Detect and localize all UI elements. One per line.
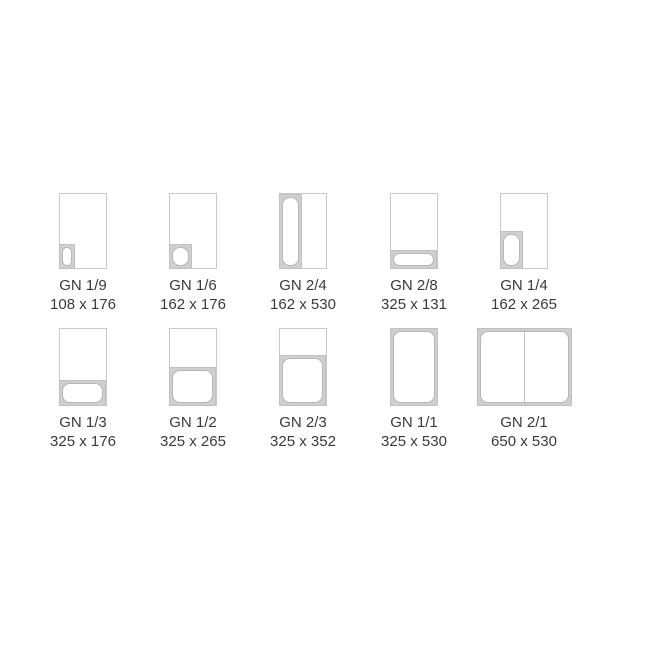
gn-dimensions-label: 108 x 176 (28, 295, 138, 314)
gn-module-frame (169, 328, 217, 406)
gn-dimensions-label: 162 x 265 (469, 295, 579, 314)
gn-dimensions-label: 325 x 352 (248, 432, 358, 451)
gn-code-label: GN 2/1 (469, 413, 579, 432)
gn-module-frame (59, 328, 107, 406)
gn-pan-icon (279, 355, 326, 406)
pan-well (62, 247, 72, 266)
gn-pan-icon (390, 250, 437, 269)
gn-module-frame (477, 328, 572, 406)
gn-item-1-1: GN 1/1 325 x 530 (359, 328, 469, 451)
pan-well (172, 247, 189, 266)
gn-module-frame (279, 193, 327, 269)
gn-item-1-3: GN 1/3 325 x 176 (28, 328, 138, 451)
pan-well (503, 234, 520, 266)
gn-pan-icon (169, 367, 216, 406)
pan-well (282, 358, 323, 403)
gn-dimensions-label: 325 x 530 (359, 432, 469, 451)
pan-well (282, 197, 299, 266)
gn-item-2-1: GN 2/1 650 x 530 (469, 328, 579, 451)
pan-well (393, 331, 435, 403)
gn-code-label: GN 2/4 (248, 276, 358, 295)
pan-well (393, 253, 434, 266)
gn-item-1-4: GN 1/4 162 x 265 (469, 193, 579, 314)
gn-module-frame (59, 193, 107, 269)
gn-dimensions-label: 325 x 176 (28, 432, 138, 451)
module-divider-line (524, 329, 525, 405)
pan-well (172, 370, 213, 403)
gn-pan-icon (59, 380, 106, 406)
pan-well (62, 383, 103, 403)
gn-code-label: GN 1/3 (28, 413, 138, 432)
gn-item-1-6: GN 1/6 162 x 176 (138, 193, 248, 314)
gn-dimensions-label: 650 x 530 (469, 432, 579, 451)
gn-code-label: GN 1/2 (138, 413, 248, 432)
gn-module-frame (500, 193, 548, 269)
gn-module-frame (390, 193, 438, 269)
gn-code-label: GN 2/8 (359, 276, 469, 295)
gn-pan-icon (390, 328, 438, 406)
gn-pan-icon (169, 244, 192, 269)
gn-pan-icon (59, 244, 75, 269)
gn-module-frame (279, 328, 327, 406)
gn-item-1-9: GN 1/9 108 x 176 (28, 193, 138, 314)
gn-pan-icon (500, 231, 523, 269)
gn-module-frame (390, 328, 438, 406)
gn-code-label: GN 1/6 (138, 276, 248, 295)
gn-pan-icon (279, 194, 302, 269)
gn-item-2-4: GN 2/4 162 x 530 (248, 193, 358, 314)
gn-code-label: GN 1/9 (28, 276, 138, 295)
gn-code-label: GN 2/3 (248, 413, 358, 432)
gn-dimensions-label: 162 x 176 (138, 295, 248, 314)
gn-code-label: GN 1/1 (359, 413, 469, 432)
gn-dimensions-label: 325 x 265 (138, 432, 248, 451)
gn-size-chart: GN 1/9 108 x 176 GN 1/6 162 x 176 GN 2/4… (0, 0, 650, 650)
gn-dimensions-label: 325 x 131 (359, 295, 469, 314)
gn-item-1-2: GN 1/2 325 x 265 (138, 328, 248, 451)
gn-code-label: GN 1/4 (469, 276, 579, 295)
gn-dimensions-label: 162 x 530 (248, 295, 358, 314)
gn-item-2-8: GN 2/8 325 x 131 (359, 193, 469, 314)
gn-item-2-3: GN 2/3 325 x 352 (248, 328, 358, 451)
gn-module-frame (169, 193, 217, 269)
